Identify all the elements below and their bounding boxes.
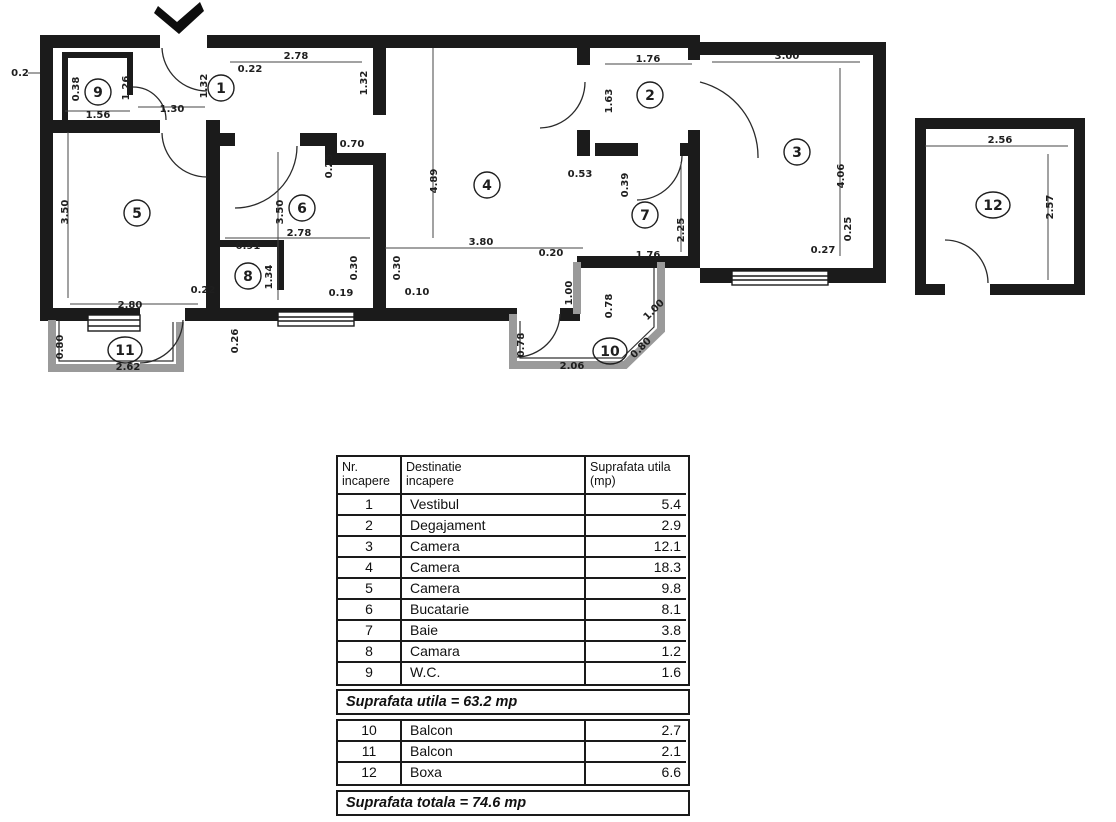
dim-label: 0.27 [811,245,836,256]
radiator-room5 [88,315,140,331]
dim-label: 1.34 [264,265,275,290]
table-row: 8 Camara 1.2 [338,642,688,663]
room-label-3: 3 [784,139,810,165]
walls [40,35,1085,321]
dim-label: 2.56 [988,135,1013,146]
dim-label: 2.78 [284,51,309,62]
dim-label: 2.78 [287,228,312,239]
dim-label: 4.06 [836,164,847,189]
row-area: 6.6 [586,763,686,784]
row-nr: 11 [338,742,402,763]
row-nr: 2 [338,516,402,537]
table-row: 1 Vestibul 5.4 [338,495,688,516]
dim-label: 0.25 [324,154,335,179]
dim-label: 0.91 [236,241,261,252]
row-nr: 7 [338,621,402,642]
header-destinatie: Destinatieincapere [402,457,586,495]
row-nr: 3 [338,537,402,558]
room-label-9: 9 [85,79,111,105]
dim-label: 4.89 [429,169,440,194]
dim-label: 1.56 [86,110,111,121]
dim-label: 1.32 [359,71,370,96]
dim-label: 2.57 [1045,195,1056,220]
row-nr: 1 [338,495,402,516]
row-area: 9.8 [586,579,686,600]
header-nr: Nr.incapere [338,457,402,495]
area-table: Nr.incapere Destinatieincapere Suprafata… [336,455,690,816]
row-name: Boxa [402,763,586,784]
room-label-2: 2 [637,82,663,108]
dim-label: 2.06 [560,361,585,372]
room-label-7: 7 [632,202,658,228]
dim-label: 1.26 [121,76,132,101]
room-label-1: 1 [208,75,234,101]
radiator-room3 [732,271,828,285]
radiator-room6 [278,312,354,326]
dim-label: 1.76 [636,250,661,261]
svg-text:1: 1 [216,81,226,97]
row-name: Balcon [402,721,586,742]
dim-label: 2.62 [116,362,141,373]
row-name: Bucatarie [402,600,586,621]
row-area: 18.3 [586,558,686,579]
dim-label: 3.50 [60,200,71,225]
subtotal-row: Suprafata utila = 63.2 mp [336,689,690,715]
dimension-lines [28,48,1068,304]
room-label-5: 5 [124,200,150,226]
svg-text:3: 3 [792,145,802,161]
dim-label: 0.38 [71,77,82,102]
room5-door-arc [162,133,207,177]
svg-text:4: 4 [482,178,492,194]
svg-text:6: 6 [297,201,307,217]
svg-text:8: 8 [243,269,253,285]
dim-label: 1.76 [636,54,661,65]
svg-text:12: 12 [983,198,1002,214]
row-nr: 10 [338,721,402,742]
svg-text:10: 10 [600,344,620,360]
svg-text:7: 7 [640,208,650,224]
dim-label: 0.19 [329,288,354,299]
entrance-arrow-icon [154,2,204,34]
row-name: Camera [402,579,586,600]
row-area: 12.1 [586,537,686,558]
room-label-11: 11 [108,337,142,363]
dim-label: 2.80 [118,300,143,311]
row-area: 2.1 [586,742,686,763]
dim-label: 1.63 [604,89,615,114]
room2-to-room3-door-arc [700,82,758,158]
svg-text:2: 2 [645,88,655,104]
dim-label: 0.26 [230,329,241,354]
row-name: Baie [402,621,586,642]
dim-label: 0.70 [340,139,365,150]
dim-label: 0.10 [405,287,430,298]
room7-door-arc [637,156,682,200]
dim-label: 1.30 [160,104,185,115]
svg-text:9: 9 [93,85,103,101]
row-area: 3.8 [586,621,686,642]
row-nr: 6 [338,600,402,621]
dim-label: 0.25 [843,217,854,242]
row-nr: 9 [338,663,402,684]
table-row: 5 Camera 9.8 [338,579,688,600]
dim-label: 0.2 [11,68,29,79]
dim-label: 0.39 [620,173,631,198]
dim-label: 3.00 [775,51,800,62]
table-row: 2 Degajament 2.9 [338,516,688,537]
room2-to-room4-door-arc [540,82,585,128]
table-row: 4 Camera 18.3 [338,558,688,579]
room-label-8: 8 [235,263,261,289]
row-area: 1.6 [586,663,686,684]
floor-plan-page: 0.2 0.38 1.26 1.56 1.30 2.78 0.22 1.32 1… [0,0,1116,822]
room12-door-arc [945,240,988,283]
row-nr: 12 [338,763,402,784]
dim-label: 2.25 [676,218,687,243]
room-label-10: 10 [593,338,627,364]
header-suprafata: Suprafata utila(mp) [586,457,686,495]
dim-label: 1.00 [564,281,575,306]
row-nr: 4 [338,558,402,579]
dim-label: 3.50 [275,200,286,225]
room-label-4: 4 [474,172,500,198]
area-table-main: Nr.incapere Destinatieincapere Suprafata… [336,455,690,686]
table-row: 6 Bucatarie 8.1 [338,600,688,621]
dimension-labels: 0.2 0.38 1.26 1.56 1.30 2.78 0.22 1.32 1… [11,51,1056,373]
total-row: Suprafata totala = 74.6 mp [336,790,690,816]
row-area: 1.2 [586,642,686,663]
row-name: Camera [402,537,586,558]
row-name: W.C. [402,663,586,684]
dim-label: 0.80 [55,335,66,360]
row-nr: 8 [338,642,402,663]
table-row: 12 Boxa 6.6 [338,763,688,784]
table-header-row: Nr.incapere Destinatieincapere Suprafata… [338,457,688,495]
table-row: 7 Baie 3.8 [338,621,688,642]
row-name: Camara [402,642,586,663]
dim-label: 0.78 [516,333,527,358]
row-area: 2.9 [586,516,686,537]
dim-label: 0.30 [349,256,360,281]
dim-label: 3.80 [469,237,494,248]
row-name: Vestibul [402,495,586,516]
row-name: Camera [402,558,586,579]
svg-text:5: 5 [132,206,142,222]
dim-label: 0.20 [539,248,564,259]
dim-label: 0.22 [191,285,216,296]
dim-label: 0.30 [392,256,403,281]
row-name: Degajament [402,516,586,537]
table-row: 10 Balcon 2.7 [338,721,688,742]
row-area: 5.4 [586,495,686,516]
row-area: 8.1 [586,600,686,621]
dim-label: 0.22 [238,64,263,75]
area-table-annex: 10 Balcon 2.7 11 Balcon 2.1 12 Boxa 6.6 [336,719,690,786]
row-nr: 5 [338,579,402,600]
table-row: 11 Balcon 2.1 [338,742,688,763]
row-name: Balcon [402,742,586,763]
floor-plan-drawing: 0.2 0.38 1.26 1.56 1.30 2.78 0.22 1.32 1… [0,0,1116,445]
room-label-6: 6 [289,195,315,221]
row-area: 2.7 [586,721,686,742]
table-row: 3 Camera 12.1 [338,537,688,558]
dim-label: 0.78 [604,294,615,319]
room6-door-arc [235,146,297,208]
dim-label: 0.53 [568,169,593,180]
room-label-12: 12 [976,192,1010,218]
svg-text:11: 11 [115,343,134,359]
table-row: 9 W.C. 1.6 [338,663,688,684]
